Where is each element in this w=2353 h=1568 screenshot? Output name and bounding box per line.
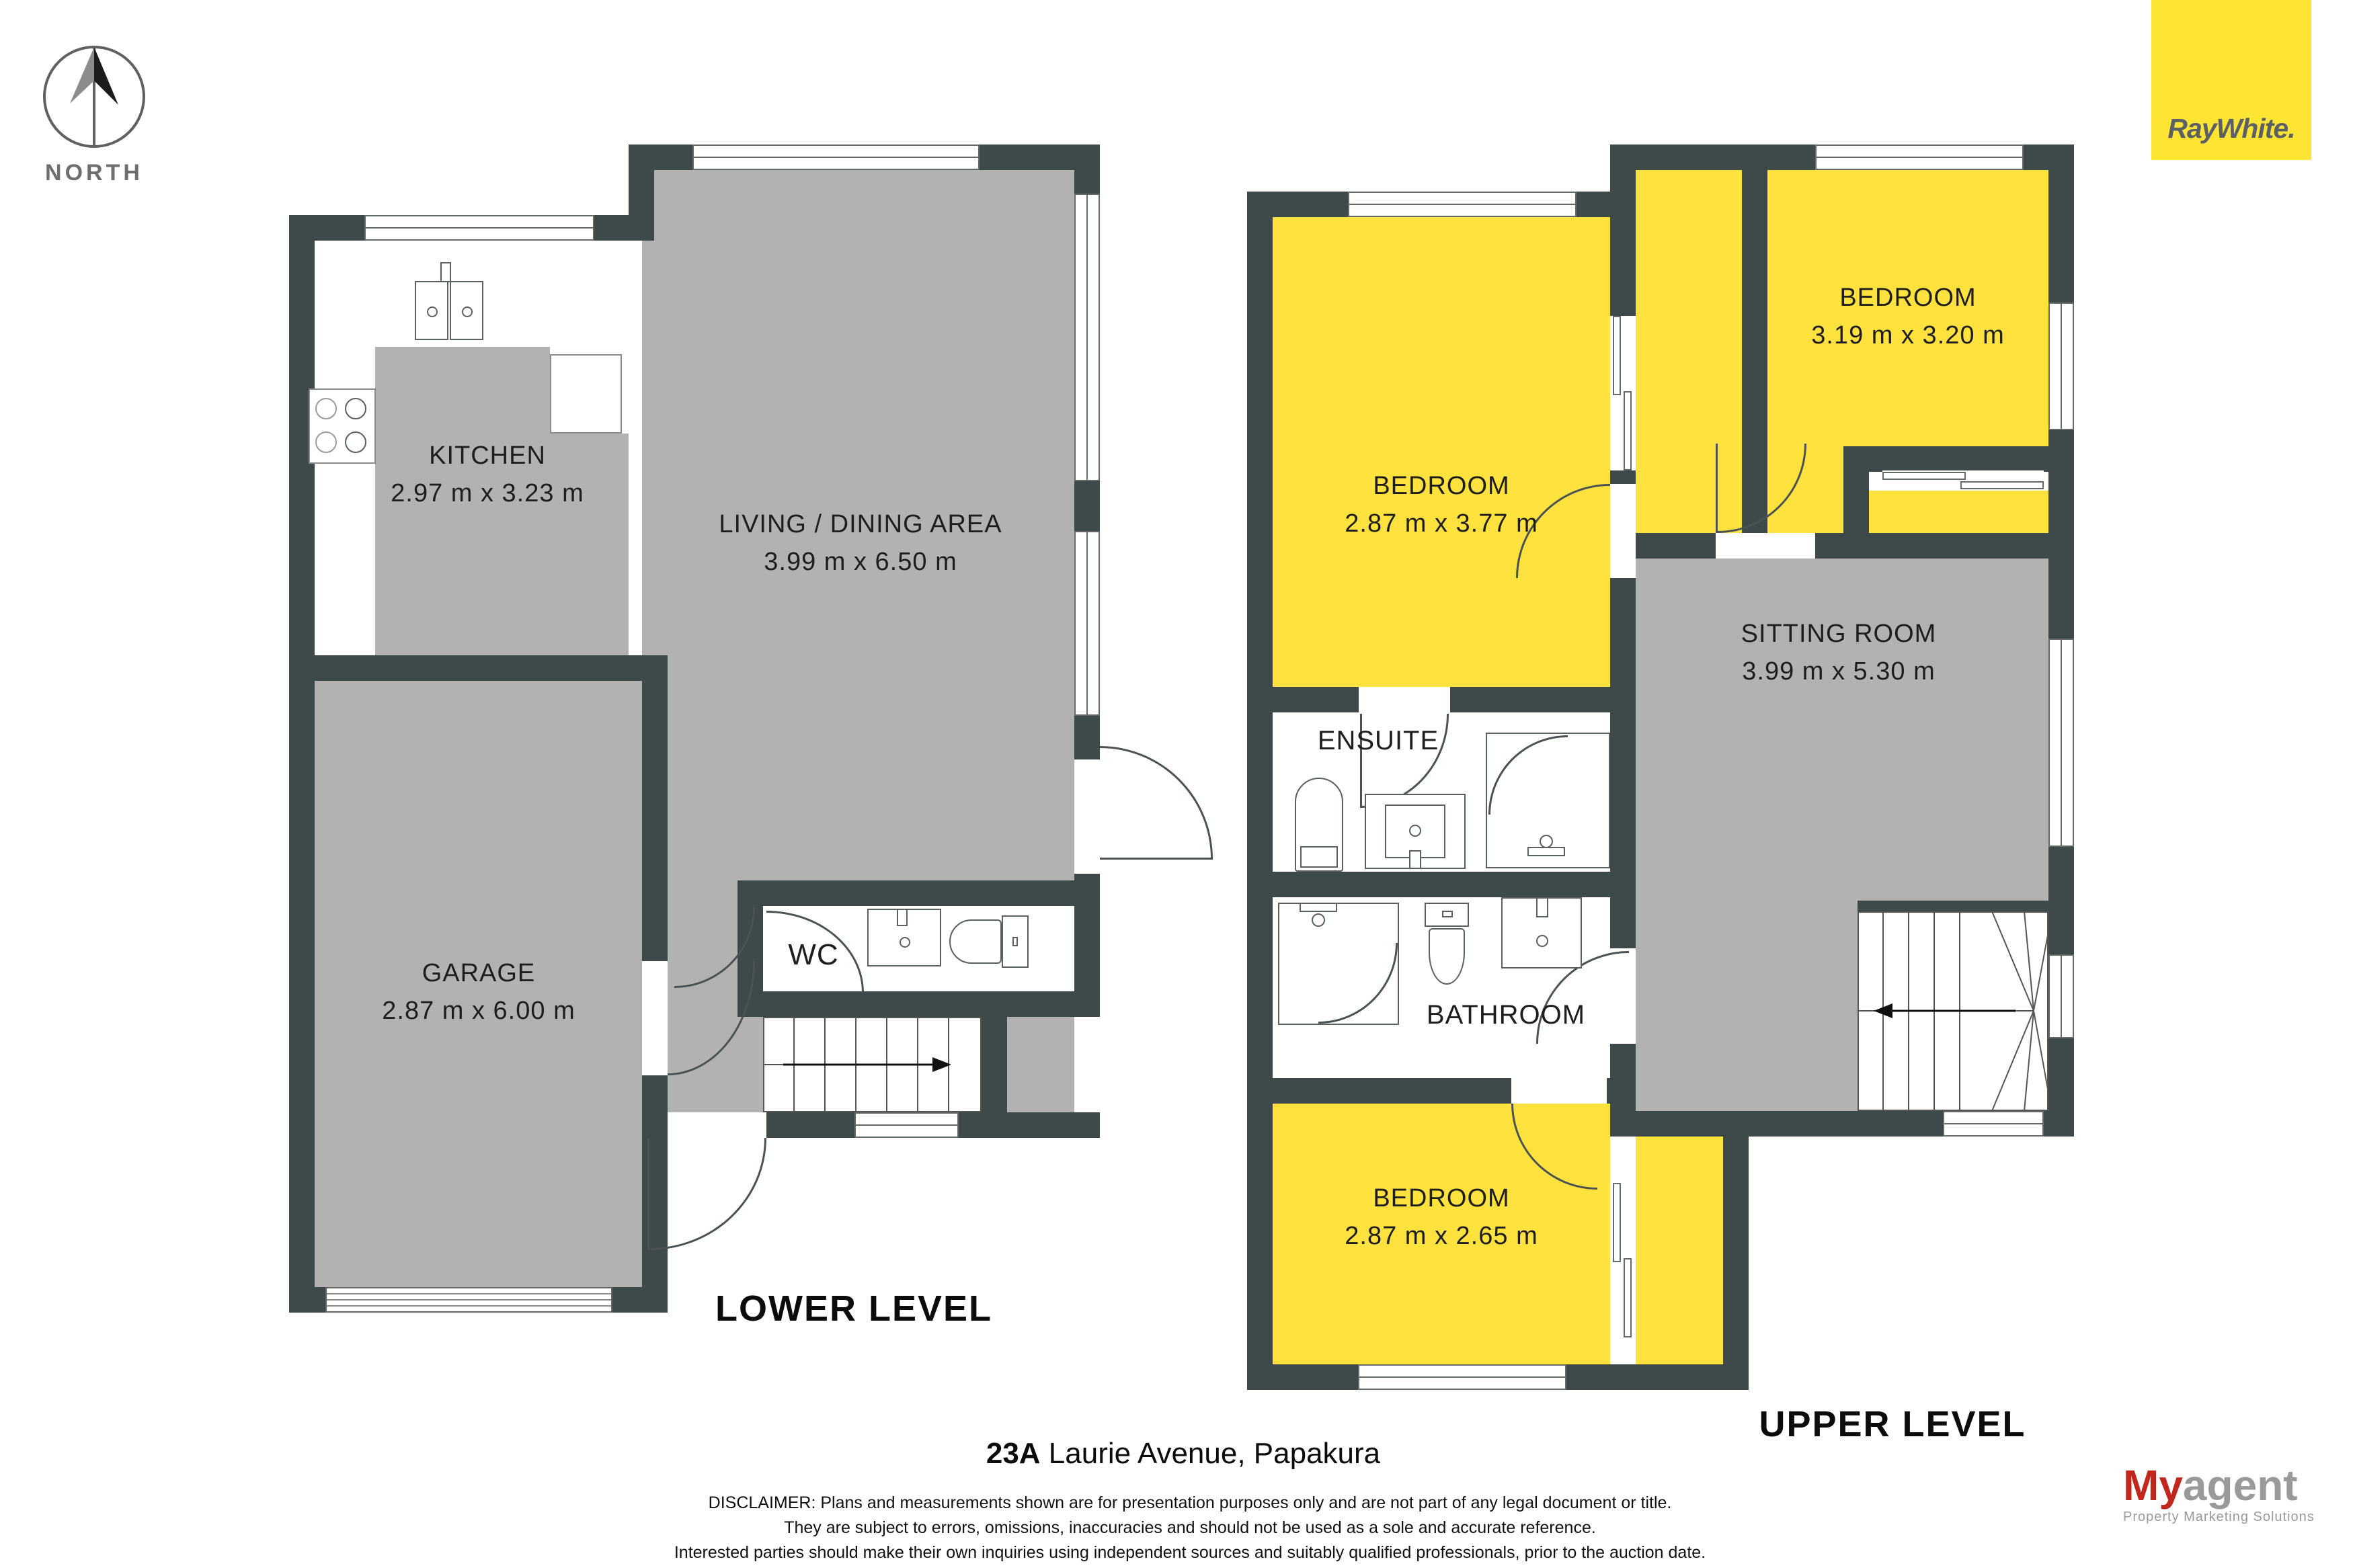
address-street: Laurie Avenue, Papakura xyxy=(1041,1437,1381,1470)
sliding-panel xyxy=(1960,481,2044,489)
disclaimer-line: They are subject to errors, omissions, i… xyxy=(659,1516,1721,1540)
wall-segment xyxy=(289,215,315,1313)
drain-icon xyxy=(900,937,910,948)
landing-floor xyxy=(1007,1017,1074,1112)
bathroom-toilet-bowl xyxy=(1429,928,1465,985)
threshold xyxy=(1943,1111,2044,1137)
ensuite-toilet xyxy=(1295,778,1343,872)
room-name: SITTING ROOM xyxy=(1644,615,2034,653)
sliding-panel xyxy=(1624,1258,1632,1337)
faucet-icon xyxy=(1409,850,1421,869)
room-label-ensuite: ENSUITE xyxy=(1277,726,1479,756)
wall-segment xyxy=(1843,446,2074,472)
shower-door-arc xyxy=(1318,943,1398,1024)
room-dims: 3.99 m x 6.50 m xyxy=(659,543,1062,581)
shower-door-arc xyxy=(1488,735,1568,815)
kitchen-counter xyxy=(550,354,622,434)
sliding-door xyxy=(1882,470,2044,491)
sliding-door xyxy=(1610,316,1636,470)
burner-icon xyxy=(345,398,366,419)
door-opening xyxy=(1074,759,1100,874)
room-dims: 2.87 m x 6.00 m xyxy=(344,992,613,1030)
bedroom2-wardrobe-floor xyxy=(1869,491,2048,533)
address: 23A Laurie Avenue, Papakura xyxy=(807,1437,1560,1471)
north-label: NORTH xyxy=(27,160,161,186)
room-label-bedroom2: BEDROOM 3.19 m x 3.20 m xyxy=(1740,279,2076,354)
window xyxy=(1074,531,1100,716)
bathroom-shower xyxy=(1278,903,1399,1025)
toilet-seat xyxy=(1300,846,1338,868)
window xyxy=(1358,1364,1566,1390)
disclaimer-line: Interested parties should make their own… xyxy=(659,1540,1721,1565)
room-name: KITCHEN xyxy=(353,437,622,474)
stairs-lower xyxy=(763,1017,982,1112)
showerhead-icon xyxy=(1300,903,1337,912)
upper-level-title: UPPER LEVEL xyxy=(1704,1403,2081,1445)
room-name: BEDROOM xyxy=(1273,467,1609,505)
window xyxy=(1815,145,2024,170)
flush-button-icon xyxy=(1012,937,1018,946)
floorplan-canvas: NORTH RayWhite. xyxy=(0,0,2353,1568)
wall-segment xyxy=(1247,872,1636,897)
myagent-logo-text: Myagent xyxy=(2123,1464,2352,1507)
drain-icon xyxy=(1536,935,1548,947)
garage-door xyxy=(325,1287,612,1313)
room-dims: 2.87 m x 3.77 m xyxy=(1273,505,1609,542)
raywhite-logo-text: RayWhite. xyxy=(2151,113,2311,145)
sliding-panel xyxy=(1613,316,1621,395)
room-name: LIVING / DINING AREA xyxy=(659,505,1062,543)
window xyxy=(692,145,980,170)
window xyxy=(1348,192,1577,217)
living-floor xyxy=(642,241,1074,657)
bedroom3-wardrobe-floor xyxy=(1636,1137,1723,1364)
myagent-logo-my: My xyxy=(2123,1461,2183,1510)
wall-segment xyxy=(642,655,668,961)
room-dims: 2.97 m x 3.23 m xyxy=(353,474,622,512)
room-label-living: LIVING / DINING AREA 3.99 m x 6.50 m xyxy=(659,505,1062,581)
drain-icon xyxy=(462,306,473,317)
stairs-edge xyxy=(1858,901,2048,911)
showerhead-icon xyxy=(1527,847,1565,856)
door-opening xyxy=(668,1112,766,1138)
myagent-logo-agent: agent xyxy=(2183,1461,2298,1510)
door-opening xyxy=(642,961,668,1075)
room-label-bedroom1: BEDROOM 2.87 m x 3.77 m xyxy=(1273,467,1609,542)
room-name: GARAGE xyxy=(344,954,613,992)
door-arc xyxy=(1100,746,1213,859)
disclaimer-line: DISCLAIMER: Plans and measurements shown… xyxy=(659,1491,1721,1516)
showerhead-icon xyxy=(1312,913,1325,927)
burner-icon xyxy=(315,398,337,419)
bathroom-toilet-tank xyxy=(1425,903,1469,927)
door-leaf xyxy=(1100,858,1213,860)
wall-segment xyxy=(737,991,1100,1017)
wc-toilet-tank xyxy=(1002,915,1029,968)
window xyxy=(364,215,594,241)
room-label-sitting: SITTING ROOM 3.99 m x 5.30 m xyxy=(1644,615,2034,690)
bedroom1-floor xyxy=(1273,217,1610,687)
window xyxy=(1074,194,1100,481)
wall-segment xyxy=(1843,446,1869,559)
room-label-garage: GARAGE 2.87 m x 6.00 m xyxy=(344,954,613,1030)
sliding-panel xyxy=(1624,391,1632,470)
room-label-kitchen: KITCHEN 2.97 m x 3.23 m xyxy=(353,437,622,512)
sliding-panel xyxy=(1613,1183,1621,1262)
door-opening xyxy=(1359,687,1450,712)
door-opening xyxy=(1511,1078,1607,1104)
kitchen-sink-left xyxy=(415,281,448,340)
door-opening xyxy=(1610,484,1636,578)
sliding-door xyxy=(1610,1183,1636,1337)
living-floor xyxy=(668,655,1074,880)
stairs-upper xyxy=(1858,911,2048,1111)
myagent-logo: Myagent Property Marketing Solutions xyxy=(2123,1464,2352,1525)
burner-icon xyxy=(315,431,337,453)
wall-segment xyxy=(1247,192,1273,1390)
drain-icon xyxy=(427,306,438,317)
north-compass-icon xyxy=(40,39,148,155)
ensuite-shower xyxy=(1486,733,1610,868)
wall-segment xyxy=(289,655,668,681)
wc-faucet-icon xyxy=(897,909,908,926)
door-arc xyxy=(649,1138,766,1250)
kitchen-sink-right xyxy=(450,281,483,340)
room-dims: 2.87 m x 2.65 m xyxy=(1273,1217,1609,1255)
room-dims: 3.99 m x 5.30 m xyxy=(1644,653,2034,690)
address-number: 23A xyxy=(986,1437,1041,1470)
threshold xyxy=(854,1112,959,1138)
myagent-tagline: Property Marketing Solutions xyxy=(2123,1510,2352,1525)
wall-segment xyxy=(737,880,1100,906)
room-label-wc: WC xyxy=(773,938,854,972)
wc-sink xyxy=(867,909,941,966)
room-dims: 3.19 m x 3.20 m xyxy=(1740,317,2076,354)
disclaimer: DISCLAIMER: Plans and measurements shown… xyxy=(659,1491,1721,1565)
room-name: BEDROOM xyxy=(1740,279,2076,317)
lower-level-title: LOWER LEVEL xyxy=(666,1288,1042,1329)
flush-button-icon xyxy=(1442,911,1453,917)
room-label-bathroom: BATHROOM xyxy=(1402,1000,1610,1030)
showerhead-icon xyxy=(1540,835,1553,848)
kitchen-faucet-icon xyxy=(440,262,451,282)
wall-segment xyxy=(1074,880,1100,1017)
room-label-bedroom3: BEDROOM 2.87 m x 2.65 m xyxy=(1273,1180,1609,1255)
room-name: BEDROOM xyxy=(1273,1180,1609,1217)
bathroom-sink xyxy=(1501,897,1582,968)
door-leaf xyxy=(1716,444,1718,533)
faucet-icon xyxy=(1536,897,1548,917)
ensuite-sink xyxy=(1365,794,1466,869)
window xyxy=(2048,954,2074,1038)
door-opening xyxy=(1716,533,1815,559)
door-leaf xyxy=(647,1138,649,1250)
wall-segment xyxy=(1723,1137,1749,1390)
window xyxy=(2048,638,2074,847)
wc-toilet-bowl xyxy=(949,919,1002,964)
drain-icon xyxy=(1409,825,1421,837)
living-floor xyxy=(654,170,1074,244)
sliding-panel xyxy=(1882,472,1966,480)
